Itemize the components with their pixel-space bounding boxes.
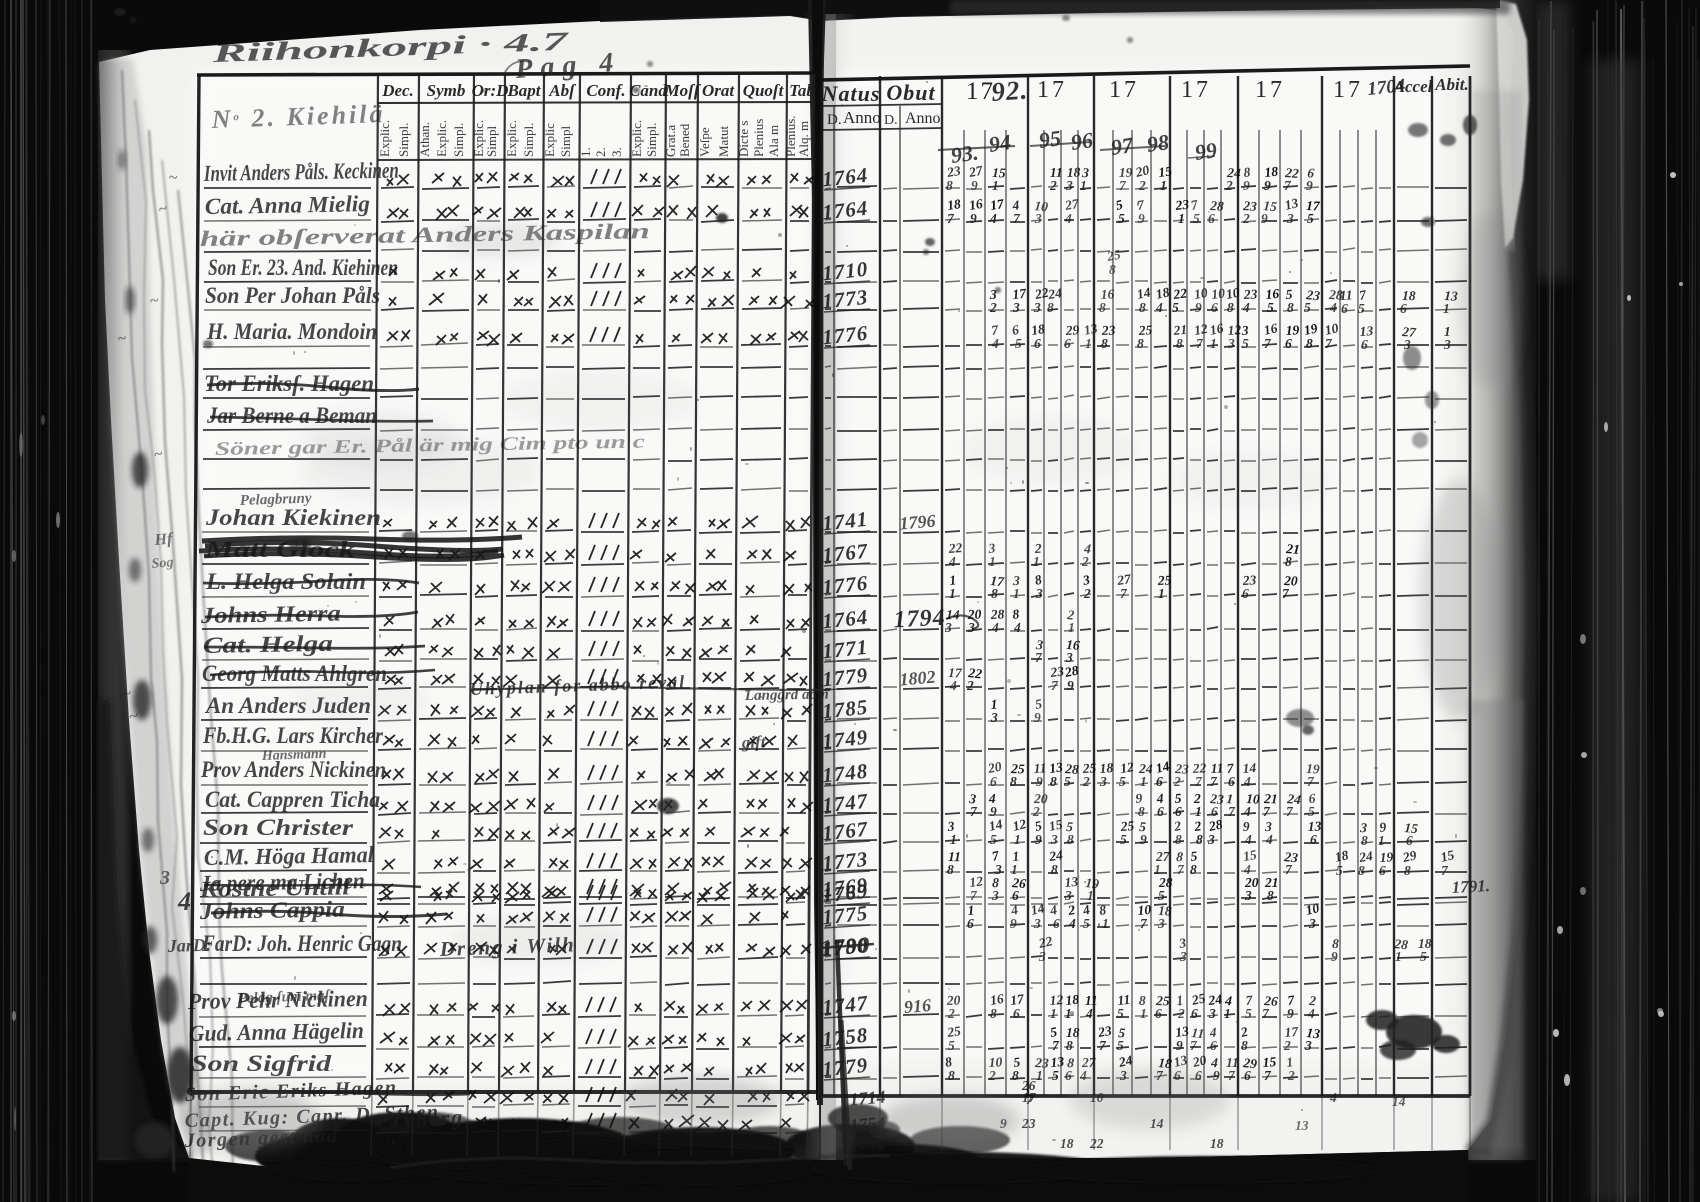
- svg-text:8: 8: [1190, 862, 1197, 877]
- svg-text:4: 4: [948, 554, 956, 569]
- svg-text:6: 6: [1034, 336, 1041, 351]
- svg-text:3: 3: [1208, 1006, 1216, 1021]
- svg-text:4: 4: [1244, 832, 1252, 847]
- svg-text:8: 8: [1067, 832, 1074, 847]
- svg-text:1: 1: [949, 586, 956, 601]
- svg-text:Tab: Tab: [789, 81, 815, 100]
- svg-text:Conf.: Conf.: [586, 81, 625, 100]
- svg-text:6: 6: [1341, 301, 1348, 316]
- svg-text:5: 5: [1336, 863, 1343, 878]
- svg-text:9: 9: [1261, 211, 1268, 226]
- svg-text:Plenius: Plenius: [751, 119, 766, 157]
- svg-text:4: 4: [989, 211, 997, 226]
- svg-text:2: 2: [947, 1006, 955, 1021]
- svg-text:8: 8: [1358, 863, 1365, 878]
- svg-text:2: 2: [989, 300, 997, 315]
- svg-text:4: 4: [1064, 211, 1072, 226]
- svg-text:14: 14: [1392, 1094, 1406, 1109]
- svg-text:2: 2: [1082, 774, 1090, 789]
- svg-text:8: 8: [1267, 888, 1274, 903]
- svg-text:5: 5: [1308, 804, 1315, 819]
- svg-text:Simpl.: Simpl.: [644, 123, 659, 157]
- svg-text:6: 6: [1310, 832, 1317, 847]
- svg-text:5: 5: [1304, 300, 1311, 315]
- svg-text:Obut: Obut: [886, 80, 935, 105]
- svg-text:6: 6: [1053, 916, 1060, 931]
- svg-text:6: 6: [1013, 1006, 1020, 1021]
- svg-text:1: 1: [1443, 301, 1450, 316]
- svg-text:5: 5: [1083, 916, 1090, 931]
- svg-text:Son Per Johan Påls: Son Per Johan Påls: [205, 283, 380, 308]
- svg-text:5: 5: [1052, 1068, 1059, 1083]
- svg-text:96: 96: [1069, 127, 1094, 155]
- svg-text:3: 3: [1033, 300, 1041, 315]
- svg-text:9: 9: [1306, 178, 1313, 193]
- svg-text:3: 3: [944, 620, 952, 635]
- svg-text:L. Helga Solain: L. Helga Solain: [205, 569, 366, 594]
- svg-text:2.: 2.: [593, 147, 608, 157]
- svg-text:8: 8: [1241, 1038, 1248, 1053]
- svg-text:Explic.: Explic.: [434, 120, 449, 157]
- svg-text:Natus: Natus: [821, 81, 881, 106]
- svg-text:13: 13: [1295, 1118, 1309, 1133]
- svg-text:Son Sigfrid: Son Sigfrid: [191, 1051, 332, 1076]
- svg-text:Son Er. 23. And. Kiehinen: Son Er. 23. And. Kiehinen: [208, 255, 398, 280]
- svg-text:1: 1: [1158, 586, 1165, 601]
- svg-text:~: ~: [168, 169, 179, 187]
- svg-text:D.: D.: [827, 112, 842, 128]
- svg-text:1: 1: [1068, 620, 1075, 635]
- svg-text:9: 9: [1264, 178, 1271, 193]
- svg-text:3: 3: [159, 867, 170, 889]
- svg-text:3: 3: [1179, 949, 1187, 964]
- svg-text:Gud. Anna Hägelin: Gud. Anna Hägelin: [189, 1018, 364, 1046]
- svg-text:6: 6: [1379, 863, 1386, 878]
- svg-text:9: 9: [1140, 832, 1147, 847]
- svg-text:5: 5: [1193, 211, 1200, 226]
- svg-text:9: 9: [1034, 710, 1041, 725]
- svg-text:Matut: Matut: [716, 126, 731, 157]
- svg-text:5: 5: [1307, 211, 1314, 226]
- svg-text:5: 5: [1118, 211, 1125, 226]
- svg-text:Dicte s: Dicte s: [736, 121, 751, 157]
- svg-text:4: 4: [1243, 804, 1251, 819]
- svg-text:8: 8: [1361, 833, 1368, 848]
- svg-text:2: 2: [1287, 1068, 1295, 1083]
- svg-text:5: 5: [1358, 301, 1365, 316]
- svg-text:Dec.: Dec.: [381, 81, 414, 100]
- svg-text:3: 3: [1012, 300, 1020, 315]
- svg-text:26: 26: [1021, 1078, 1036, 1093]
- svg-text:95: 95: [1037, 125, 1062, 153]
- svg-text:6: 6: [1012, 888, 1019, 903]
- svg-text:9: 9: [1036, 774, 1043, 789]
- svg-text:Explic.: Explic.: [504, 120, 519, 157]
- svg-text:6: 6: [1191, 1006, 1198, 1021]
- svg-text:9: 9: [1067, 678, 1074, 693]
- svg-text:8: 8: [1227, 300, 1234, 315]
- svg-text:6: 6: [1208, 211, 1215, 226]
- svg-text:1: 1: [1210, 336, 1217, 351]
- svg-text:D.: D.: [884, 113, 898, 128]
- svg-text:2: 2: [966, 678, 974, 693]
- svg-text:3: 3: [967, 620, 975, 635]
- svg-text:Abſ: Abſ: [548, 81, 577, 100]
- svg-text:6: 6: [1285, 336, 1292, 351]
- svg-text:8: 8: [1196, 832, 1203, 847]
- svg-text:Simpl.: Simpl.: [451, 123, 466, 157]
- svg-text:Ala m: Ala m: [766, 125, 781, 157]
- svg-text:2: 2: [1081, 554, 1089, 569]
- svg-text:2: 2: [1032, 804, 1040, 819]
- svg-text:4: 4: [1085, 1006, 1093, 1021]
- svg-text:Cat. Cappren Ticha: Cat. Cappren Ticha: [205, 787, 380, 812]
- svg-text:6: 6: [1242, 586, 1249, 601]
- svg-text:1802: 1802: [899, 666, 937, 689]
- svg-text:6: 6: [1406, 833, 1413, 848]
- svg-text:H. Maria. Mondoin: H. Maria. Mondoin: [206, 319, 377, 344]
- svg-text:1: 1: [1160, 178, 1167, 193]
- svg-text:4: 4: [1243, 774, 1251, 789]
- svg-text:Abit.: Abit.: [1434, 75, 1469, 94]
- svg-text:8: 8: [1101, 336, 1108, 351]
- svg-text:8: 8: [1109, 262, 1116, 277]
- svg-text:8: 8: [947, 862, 954, 877]
- svg-text:1: 1: [1378, 833, 1385, 848]
- svg-text:6: 6: [1155, 1006, 1162, 1021]
- svg-text:~: ~: [149, 292, 160, 310]
- svg-text:Veſpe: Veſpe: [697, 127, 712, 157]
- svg-text:Alq. m: Alq. m: [796, 121, 811, 157]
- svg-text:3.: 3.: [609, 147, 624, 157]
- svg-text:6: 6: [967, 916, 974, 931]
- svg-text:8: 8: [1047, 300, 1054, 315]
- svg-text:6: 6: [1228, 774, 1235, 789]
- svg-text:Grat.a: Grat.a: [663, 125, 678, 157]
- svg-text:1: 1: [1140, 774, 1147, 789]
- svg-text:Simpl.: Simpl.: [521, 123, 536, 157]
- svg-text:Athan.: Athan.: [417, 122, 432, 157]
- svg-text:1: 1: [1013, 586, 1020, 601]
- svg-text:3: 3: [1286, 211, 1294, 226]
- svg-text:98: 98: [1145, 129, 1170, 157]
- svg-text:1: 1: [1087, 888, 1094, 903]
- svg-text:Explic.: Explic.: [629, 120, 644, 157]
- svg-text:JarD:: JarD:: [166, 934, 212, 956]
- svg-text:6: 6: [1211, 300, 1218, 315]
- svg-text:17: 17: [1037, 77, 1067, 103]
- svg-text:5: 5: [1267, 300, 1274, 315]
- svg-text:1: 1: [1050, 1006, 1057, 1021]
- svg-text:9: 9: [1138, 211, 1145, 226]
- svg-text:5: 5: [1245, 1006, 1252, 1021]
- svg-text:3: 3: [1244, 888, 1252, 903]
- svg-text:8: 8: [1050, 774, 1057, 789]
- svg-text:5: 5: [1117, 1006, 1124, 1021]
- svg-text:9: 9: [1243, 178, 1250, 193]
- svg-text:5: 5: [1172, 300, 1179, 315]
- svg-text:1: 1: [1195, 804, 1202, 819]
- svg-text:Fb.H.G. Lars Kircher: Fb.H.G. Lars Kircher: [202, 723, 384, 748]
- svg-text:4: 4: [1155, 300, 1163, 315]
- svg-text:8: 8: [1051, 862, 1058, 877]
- svg-text:1: 1: [1395, 949, 1402, 964]
- svg-text:2: 2: [988, 1068, 996, 1083]
- svg-text:FarD: Joh. Henric Gagn: FarD: Joh. Henric Gagn: [201, 931, 402, 956]
- svg-text:17: 17: [1109, 77, 1139, 103]
- svg-text:6: 6: [990, 774, 997, 789]
- svg-text:9: 9: [1331, 949, 1338, 964]
- svg-text:Anno: Anno: [843, 108, 881, 127]
- svg-text:Quoſt: Quoſt: [743, 81, 785, 100]
- svg-text:22: 22: [1089, 1136, 1104, 1151]
- svg-text:3: 3: [990, 710, 998, 725]
- svg-text:1791.: 1791.: [1451, 876, 1490, 897]
- svg-text:Hf: Hf: [153, 530, 175, 549]
- svg-text:4: 4: [991, 620, 999, 635]
- svg-text:5: 5: [948, 1038, 955, 1053]
- svg-text:Pelagbruny: Pelagbruny: [240, 490, 313, 509]
- svg-text:18: 18: [1060, 1136, 1074, 1151]
- svg-text:17: 17: [1333, 77, 1363, 103]
- svg-text:6: 6: [1157, 804, 1164, 819]
- svg-text:Explic: Explic: [542, 123, 557, 157]
- svg-text:Invit Anders Påls. Keckinen: Invit Anders Påls. Keckinen: [203, 158, 399, 186]
- svg-text:Cat. Helga: Cat. Helga: [203, 631, 333, 658]
- svg-text:3: 3: [1034, 211, 1042, 226]
- svg-text:3: 3: [1035, 586, 1043, 601]
- svg-text:17: 17: [1181, 77, 1211, 103]
- svg-text:5: 5: [1120, 832, 1127, 847]
- svg-text:2: 2: [1242, 211, 1250, 226]
- svg-text:6: 6: [1156, 774, 1163, 789]
- svg-text:94: 94: [987, 129, 1012, 157]
- svg-text:1.: 1.: [578, 147, 593, 157]
- svg-text:1: 1: [1178, 211, 1185, 226]
- svg-text:1: 1: [1080, 178, 1087, 193]
- svg-text:23: 23: [1021, 1116, 1036, 1131]
- svg-text:3: 3: [1207, 832, 1215, 847]
- svg-text:6: 6: [1065, 1068, 1072, 1083]
- svg-text:Cat. Anna Mielig: Cat. Anna Mielig: [205, 191, 370, 219]
- svg-text:8: 8: [1175, 832, 1182, 847]
- svg-text:5: 5: [1119, 774, 1126, 789]
- svg-text:1: 1: [1036, 1068, 1043, 1083]
- svg-text:8: 8: [1404, 863, 1411, 878]
- svg-text:2: 2: [1283, 1038, 1291, 1053]
- svg-text:9: 9: [1010, 916, 1017, 931]
- svg-text:3: 3: [991, 888, 999, 903]
- svg-text:4: 4: [177, 887, 191, 916]
- svg-text:5: 5: [1117, 1038, 1124, 1053]
- svg-text:3: 3: [1033, 916, 1041, 931]
- svg-text:Simpl: Simpl: [558, 126, 573, 157]
- svg-text:Son Christer: Son Christer: [203, 815, 354, 840]
- svg-text:Or:D: Or:D: [472, 81, 509, 100]
- svg-text:Johan Kiekinen: Johan Kiekinen: [205, 505, 381, 530]
- svg-text:6: 6: [1361, 337, 1368, 352]
- svg-text:6: 6: [1244, 1068, 1251, 1083]
- svg-text:1: 1: [1085, 336, 1092, 351]
- svg-text:8: 8: [1139, 300, 1146, 315]
- svg-text:4: 4: [1068, 916, 1076, 931]
- svg-text:9: 9: [970, 211, 977, 226]
- svg-text:3: 3: [1227, 336, 1235, 351]
- svg-text:4: 4: [1079, 1068, 1087, 1083]
- svg-text:8: 8: [948, 1068, 955, 1083]
- svg-text:4: 4: [1329, 1090, 1337, 1105]
- svg-text:4: 4: [1265, 832, 1273, 847]
- svg-text:5: 5: [1064, 774, 1071, 789]
- svg-text:Anno: Anno: [905, 110, 941, 127]
- svg-text:3: 3: [1308, 916, 1316, 931]
- svg-text:2: 2: [1225, 178, 1233, 193]
- svg-text:5: 5: [990, 832, 997, 847]
- svg-text:C.M. Höga Hamal: C.M. Höga Hamal: [204, 842, 375, 870]
- svg-text:18: 18: [1210, 1136, 1224, 1151]
- svg-text:1: 1: [1102, 916, 1109, 931]
- svg-text:8: 8: [1287, 300, 1294, 315]
- svg-text:Pelag ſum maſ: Pelag ſum maſ: [238, 988, 332, 1007]
- svg-text:9: 9: [1035, 832, 1042, 847]
- svg-text:2: 2: [1138, 178, 1146, 193]
- svg-text:1: 1: [1033, 554, 1040, 569]
- svg-text:1: 1: [1224, 1006, 1231, 1021]
- svg-text:97: 97: [1109, 132, 1135, 160]
- svg-text:1: 1: [1014, 832, 1021, 847]
- svg-text:9: 9: [971, 178, 978, 193]
- svg-text:3: 3: [1065, 178, 1073, 193]
- svg-text:Simpl: Simpl: [484, 126, 499, 157]
- svg-text:4: 4: [1242, 300, 1250, 315]
- svg-text:99: 99: [1193, 137, 1218, 165]
- svg-text:1796: 1796: [899, 510, 937, 533]
- svg-text:4: 4: [1307, 1006, 1315, 1021]
- svg-text:8: 8: [946, 178, 953, 193]
- svg-text:8: 8: [991, 586, 998, 601]
- svg-text:8: 8: [1138, 804, 1145, 819]
- svg-text:8: 8: [990, 1006, 997, 1021]
- svg-text:5: 5: [1158, 888, 1165, 903]
- svg-text:9: 9: [1195, 300, 1202, 315]
- svg-text:8: 8: [1099, 300, 1106, 315]
- svg-text:Symb: Symb: [427, 81, 466, 100]
- svg-text:8: 8: [1176, 336, 1183, 351]
- svg-text:9: 9: [1287, 1006, 1294, 1021]
- svg-text:Simpl.: Simpl.: [396, 123, 411, 157]
- svg-text:3: 3: [1304, 1038, 1312, 1053]
- svg-text:92.: 92.: [990, 74, 1029, 106]
- svg-text:1: 1: [1140, 1006, 1147, 1021]
- svg-text:Bened: Bened: [677, 123, 692, 157]
- svg-text:8: 8: [1306, 336, 1313, 351]
- svg-text:5: 5: [1242, 336, 1249, 351]
- svg-text:Sog: Sog: [151, 555, 174, 572]
- svg-text:1: 1: [989, 554, 996, 569]
- svg-text:Orat: Orat: [702, 81, 735, 100]
- svg-text:8: 8: [1066, 1038, 1073, 1053]
- svg-text:Hansmann: Hansmann: [261, 747, 327, 764]
- svg-text:3: 3: [1050, 832, 1058, 847]
- svg-text:4: 4: [1013, 620, 1021, 635]
- svg-text:8: 8: [1010, 774, 1017, 789]
- svg-text:Accel: Accel: [1393, 77, 1433, 96]
- svg-text:8: 8: [1012, 1068, 1019, 1083]
- svg-text:8: 8: [1137, 336, 1144, 351]
- svg-text:9: 9: [1176, 1038, 1183, 1053]
- svg-text:3: 3: [1099, 774, 1107, 789]
- svg-text:Moſſ: Moſſ: [664, 81, 702, 100]
- svg-text:17: 17: [1255, 77, 1285, 103]
